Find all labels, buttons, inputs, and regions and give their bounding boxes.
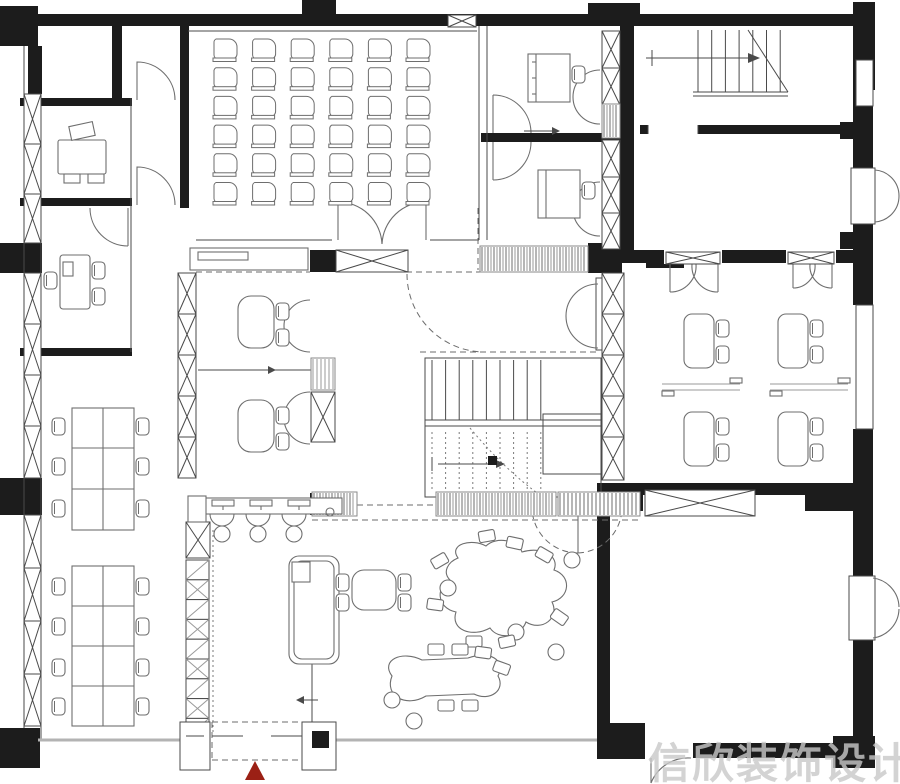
window-x-box: [178, 355, 196, 396]
chair: [716, 320, 729, 337]
classroom-chair: [329, 68, 353, 91]
chair: [716, 346, 729, 363]
hatch-band: [436, 492, 556, 516]
window-x-box: [602, 177, 620, 213]
chair: [810, 444, 823, 461]
classroom-chair: [252, 125, 276, 148]
classroom-chair: [290, 154, 314, 177]
classroom-chair: [290, 68, 314, 91]
chair: [52, 458, 65, 475]
window-x-box: [24, 144, 41, 194]
seat-square: [462, 700, 478, 711]
window-x-box: [602, 314, 624, 355]
floor-plan-canvas: 信欣装饰设计: [0, 0, 900, 784]
sofa: [289, 556, 339, 664]
seat-square: [452, 644, 468, 655]
hatch-band: [480, 246, 588, 272]
shelf-cell: [186, 659, 209, 679]
classroom-chair: [252, 39, 276, 62]
organic-table-2: [389, 655, 501, 701]
shelf-stack: [186, 560, 209, 738]
chair: [52, 698, 65, 715]
hatch-band: [558, 492, 640, 516]
shelf-cell: [186, 639, 209, 659]
classroom-chair: [329, 39, 353, 62]
floor-plan-page: 信欣装饰设计: [0, 0, 900, 784]
desk-small-office-b: [538, 170, 580, 218]
classroom-chair: [290, 125, 314, 148]
chair: [52, 418, 65, 435]
classroom-chair: [406, 183, 430, 206]
window-x-box: [602, 437, 624, 480]
seat-square: [498, 635, 516, 649]
window-x-box: [178, 437, 196, 478]
stool: [564, 552, 580, 568]
chair: [336, 594, 349, 611]
hatch-bands: [311, 104, 640, 516]
classroom-chair: [252, 68, 276, 91]
window-x-box: [24, 273, 41, 324]
classroom-chair: [406, 154, 430, 177]
hatch-band: [311, 358, 335, 390]
window-x-box: [24, 621, 41, 674]
chair: [92, 288, 105, 305]
classroom-chair: [290, 39, 314, 62]
window-x-box: [602, 213, 620, 249]
reception-counter: [200, 498, 342, 526]
stool: [406, 713, 422, 729]
classroom-chair: [367, 68, 391, 91]
desk-small-office-a: [528, 54, 570, 102]
window-x-box: [178, 314, 196, 355]
dashed-door-swing: [407, 274, 483, 352]
window-x-box: [24, 94, 41, 144]
chair: [398, 574, 411, 591]
classroom-chair: [213, 96, 237, 119]
seat-square: [426, 598, 443, 611]
desk-mid-office-a: [238, 296, 274, 348]
classroom-chair: [213, 183, 237, 206]
window-x-box: [178, 396, 196, 437]
classroom-chair: [367, 125, 391, 148]
chair: [136, 698, 149, 715]
classroom-chair: [406, 39, 430, 62]
rect: [311, 358, 335, 390]
window-x-box: [24, 674, 41, 726]
stair-direction-arrow: [748, 53, 760, 63]
chair: [716, 418, 729, 435]
window-x-box: [24, 324, 41, 375]
window-x-box: [24, 375, 41, 426]
chair: [810, 346, 823, 363]
chair: [276, 329, 289, 346]
classroom-chair: [213, 154, 237, 177]
chair: [572, 66, 585, 83]
classroom-chair: [290, 183, 314, 206]
chair: [136, 618, 149, 635]
window-x-box: [311, 392, 335, 442]
shelf-cell: [186, 560, 209, 580]
chair: [52, 500, 65, 517]
chair: [582, 182, 595, 199]
rect: [602, 104, 620, 138]
chair: [136, 500, 149, 517]
seat-square: [438, 700, 454, 711]
chair: [92, 262, 105, 279]
chair: [336, 574, 349, 591]
reception-cabinet: [188, 496, 206, 522]
window-x-box: [24, 426, 41, 478]
window-x-box: [666, 252, 720, 264]
hall-shelf-band: [190, 248, 308, 270]
classroom-chair: [329, 96, 353, 119]
window-x-box: [602, 396, 624, 437]
shelf-cell: [186, 619, 209, 639]
stool: [286, 526, 302, 542]
entrance-marker: [245, 761, 265, 780]
classroom-chair: [329, 154, 353, 177]
stool: [214, 526, 230, 542]
window-x-box: [602, 355, 624, 396]
window-x-box: [602, 273, 624, 314]
classroom-chair: [213, 125, 237, 148]
chair: [810, 320, 823, 337]
chair: [276, 303, 289, 320]
chair: [52, 659, 65, 676]
chair: [716, 444, 729, 461]
chair: [52, 578, 65, 595]
chair: [136, 578, 149, 595]
shelf-cell: [186, 679, 209, 699]
classroom-chair: [367, 39, 391, 62]
team-table-6: [72, 408, 134, 530]
entrance-vestibule: [180, 722, 336, 770]
chair: [276, 407, 289, 424]
classroom-chair: [213, 68, 237, 91]
seat-square: [428, 644, 444, 655]
chair: [276, 433, 289, 450]
seat-square: [474, 646, 491, 659]
stool: [384, 692, 400, 708]
watermark-text: 信欣装饰设计: [648, 739, 900, 784]
open-office-desks: [662, 314, 850, 466]
classroom-chair: [367, 96, 391, 119]
seat-square: [430, 552, 449, 570]
desk-office-2: [58, 122, 106, 183]
team-table-8: [72, 566, 134, 726]
window-x-box: [788, 252, 834, 264]
chair: [136, 458, 149, 475]
staircase-central: [425, 358, 601, 497]
desk-mid-office-b: [238, 400, 274, 452]
shelf-cell: [186, 600, 209, 620]
chair: [398, 594, 411, 611]
lounge-table-4: [352, 570, 396, 610]
window-x-box: [178, 273, 196, 314]
window-x-box: [186, 522, 210, 558]
classroom-chair: [213, 39, 237, 62]
shelf-cell: [186, 699, 209, 719]
chair: [52, 618, 65, 635]
desk-office-3: [60, 255, 90, 309]
classroom-chair: [406, 68, 430, 91]
staircase-top-right: [646, 30, 788, 96]
window-x-box: [602, 140, 620, 177]
classroom-chair: [329, 183, 353, 206]
classroom-chair: [290, 96, 314, 119]
classroom-chair: [406, 96, 430, 119]
classroom-chair: [406, 125, 430, 148]
chair: [44, 272, 57, 289]
seat-square: [478, 529, 496, 543]
chair: [136, 418, 149, 435]
window-x-box: [24, 194, 41, 243]
classroom-chair: [252, 183, 276, 206]
shelf-cell: [186, 580, 209, 600]
classroom-chair: [252, 96, 276, 119]
window-x-box: [645, 490, 755, 516]
chair: [136, 659, 149, 676]
hatch-band: [602, 104, 620, 138]
rect: [436, 492, 556, 516]
furniture: [58, 54, 850, 780]
chair: [810, 418, 823, 435]
classroom-chair: [367, 154, 391, 177]
stool: [250, 526, 266, 542]
stool: [548, 644, 564, 660]
window-x-box: [24, 515, 41, 568]
window-x-box: [448, 15, 476, 27]
classroom-chair: [252, 154, 276, 177]
window-x-box: [24, 568, 41, 621]
stool: [440, 580, 456, 596]
classroom-chair: [367, 183, 391, 206]
classroom-chairs: [213, 39, 430, 205]
classroom-chair: [329, 125, 353, 148]
window-x-box: [336, 250, 408, 272]
window-x-box: [602, 68, 620, 105]
window-x-box: [602, 31, 620, 68]
stair-direction-arrow: [496, 460, 505, 468]
